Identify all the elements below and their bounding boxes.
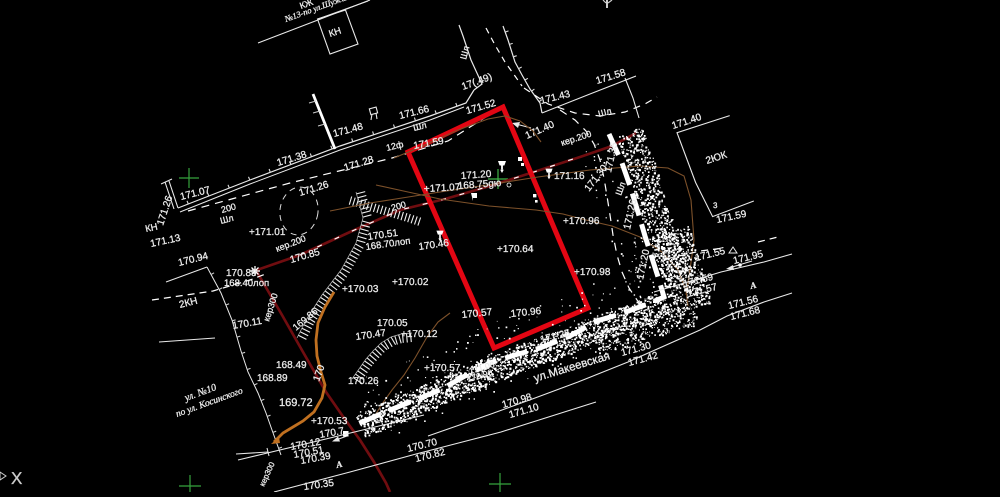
svg-text:171.16: 171.16: [554, 171, 585, 182]
svg-text:+170.64: +170.64: [497, 244, 534, 255]
svg-text:+170.57: +170.57: [424, 363, 461, 374]
svg-text:168.49: 168.49: [276, 360, 307, 371]
svg-text:+170.03: +170.03: [342, 284, 379, 295]
svg-text:170.26: 170.26: [348, 376, 379, 387]
svg-text:+170.96: +170.96: [563, 216, 600, 227]
svg-text:+170.02: +170.02: [392, 277, 429, 288]
svg-text:168.89: 168.89: [257, 373, 288, 384]
svg-text:+170.98: +170.98: [574, 267, 611, 278]
svg-text:+170.12: +170.12: [401, 329, 438, 340]
svg-text:+171.07: +171.07: [424, 182, 461, 195]
svg-text:X: X: [11, 469, 22, 488]
svg-text:3: 3: [713, 201, 718, 210]
svg-text:168.40лоп: 168.40лоп: [224, 278, 269, 289]
svg-text:169.72: 169.72: [279, 397, 313, 409]
svg-text:+171.01: +171.01: [249, 227, 286, 238]
